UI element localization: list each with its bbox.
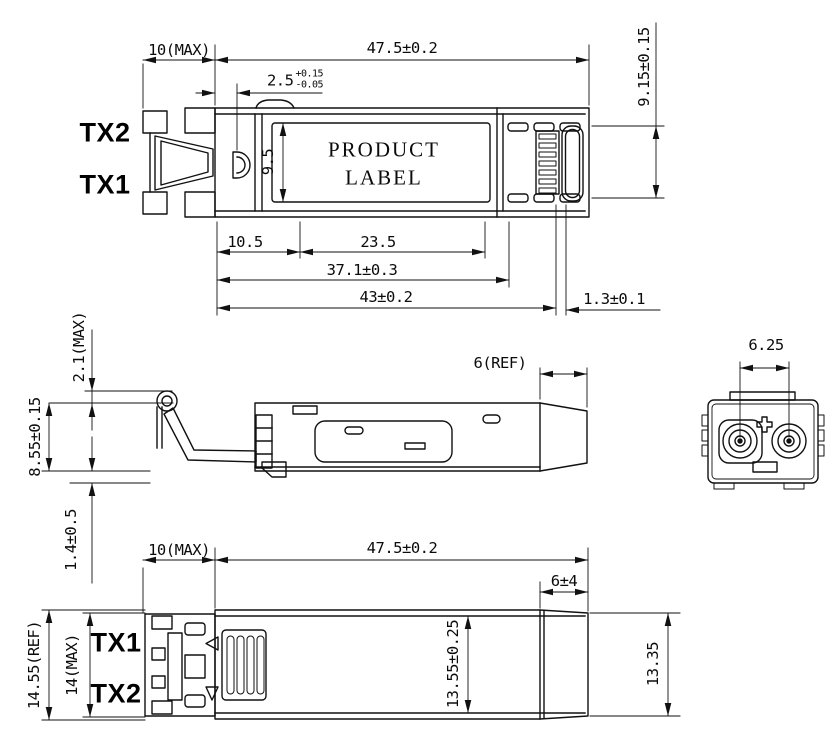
- dim-bottom-tail-width: 13.35: [644, 642, 662, 686]
- dim-top-label-length: 23.5: [360, 233, 395, 251]
- dim-bottom-body-length: 47.5±0.2: [367, 539, 438, 557]
- tolerance-minus: -0.05: [295, 80, 323, 91]
- dim-side-bail-height: 2.1(MAX): [70, 312, 88, 383]
- dim-side-body-height: 8.55±0.15: [26, 397, 44, 477]
- dim-bottom-front-width: 14(MAX): [63, 634, 81, 696]
- dim-bottom-tail-length: 6±4: [551, 572, 578, 590]
- engineering-drawing: TX2 TX1 PRODUCT LABEL 10(MAX) 47.5±0.2 2…: [0, 0, 838, 750]
- dim-top-body-length: 47.5±0.2: [367, 39, 438, 57]
- port-label-tx1-bottom: TX1: [90, 628, 141, 659]
- bottom-view-outline: [145, 610, 588, 719]
- product-label-line1: PRODUCT: [328, 138, 440, 163]
- dim-latch-offset-base: 2.5: [267, 71, 294, 89]
- dim-end-ferrule-pitch: 6.25: [748, 336, 783, 354]
- port-label-tx2-bottom: TX2: [90, 679, 141, 710]
- dim-top-latch-offset: 2.5 +0.15 -0.05: [267, 70, 323, 91]
- port-label-tx2-top: TX2: [79, 118, 130, 149]
- dim-top-shell-length: 43±0.2: [360, 288, 413, 306]
- end-view-outline: [702, 392, 824, 489]
- tolerance-plus: +0.15: [295, 70, 323, 81]
- dim-top-contact-length: 37.1±0.3: [327, 261, 398, 279]
- dim-top-pcb-offset: 1.3±0.1: [583, 290, 645, 308]
- dim-side-foot-height: 1.4±0.5: [62, 509, 80, 571]
- dim-top-connector-width: 9.15±0.15: [635, 27, 653, 107]
- port-label-tx1-top: TX1: [79, 170, 130, 201]
- dim-bottom-front-length: 10(MAX): [148, 541, 210, 559]
- dim-top-front-length: 10(MAX): [148, 41, 210, 59]
- side-view-outline: [157, 391, 587, 477]
- dim-bottom-overall-width: 14.55(REF): [25, 621, 43, 709]
- dim-side-tail-length: 6(REF): [474, 354, 527, 372]
- dim-top-label-start: 10.5: [227, 233, 262, 251]
- dim-latch-offset-tolerance: +0.15 -0.05: [295, 70, 323, 91]
- product-label-line2: LABEL: [345, 166, 423, 191]
- dim-bottom-body-width: 13.55±0.25: [444, 620, 462, 708]
- dim-top-label-width: 9.5: [259, 149, 277, 176]
